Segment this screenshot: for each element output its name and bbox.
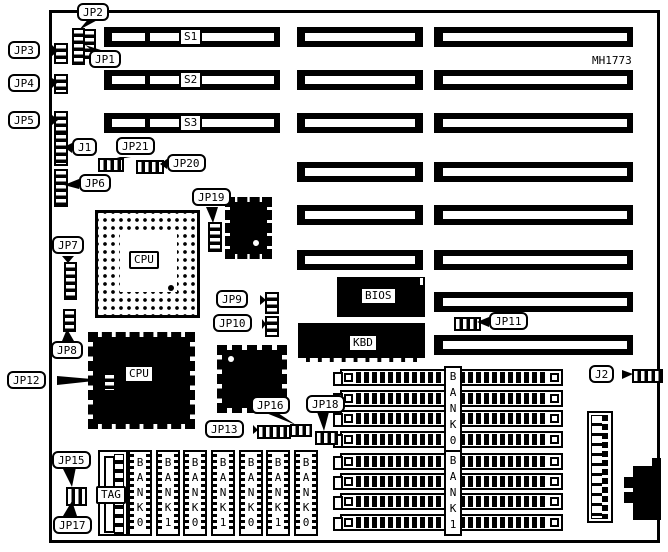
callout-jp1: JP1 [89, 50, 121, 68]
callout-lines [0, 0, 668, 552]
callout-j2: J2 [589, 365, 614, 383]
callout-jp12: JP12 [7, 371, 46, 389]
callout-jp19: JP19 [192, 188, 231, 206]
callout-jp10: JP10 [213, 314, 252, 332]
callout-jp6: JP6 [79, 174, 111, 192]
callout-jp13: JP13 [205, 420, 244, 438]
callout-jp8: JP8 [51, 341, 83, 359]
callout-jp11: JP11 [489, 312, 528, 330]
callout-j1: J1 [72, 138, 97, 156]
callout-jp18: JP18 [306, 395, 345, 413]
callout-jp9: JP9 [216, 290, 248, 308]
callout-jp7: JP7 [52, 236, 84, 254]
callout-jp5: JP5 [8, 111, 40, 129]
callout-jp17: JP17 [53, 516, 92, 534]
motherboard-diagram: MH1773 S1 S2 S3 [0, 0, 668, 552]
callout-jp15: JP15 [52, 451, 91, 469]
callout-jp16: JP16 [251, 396, 290, 414]
callout-jp21: JP21 [116, 137, 155, 155]
callout-jp2: JP2 [77, 3, 109, 21]
callout-jp20: JP20 [167, 154, 206, 172]
callout-jp3: JP3 [8, 41, 40, 59]
callout-jp4: JP4 [8, 74, 40, 92]
